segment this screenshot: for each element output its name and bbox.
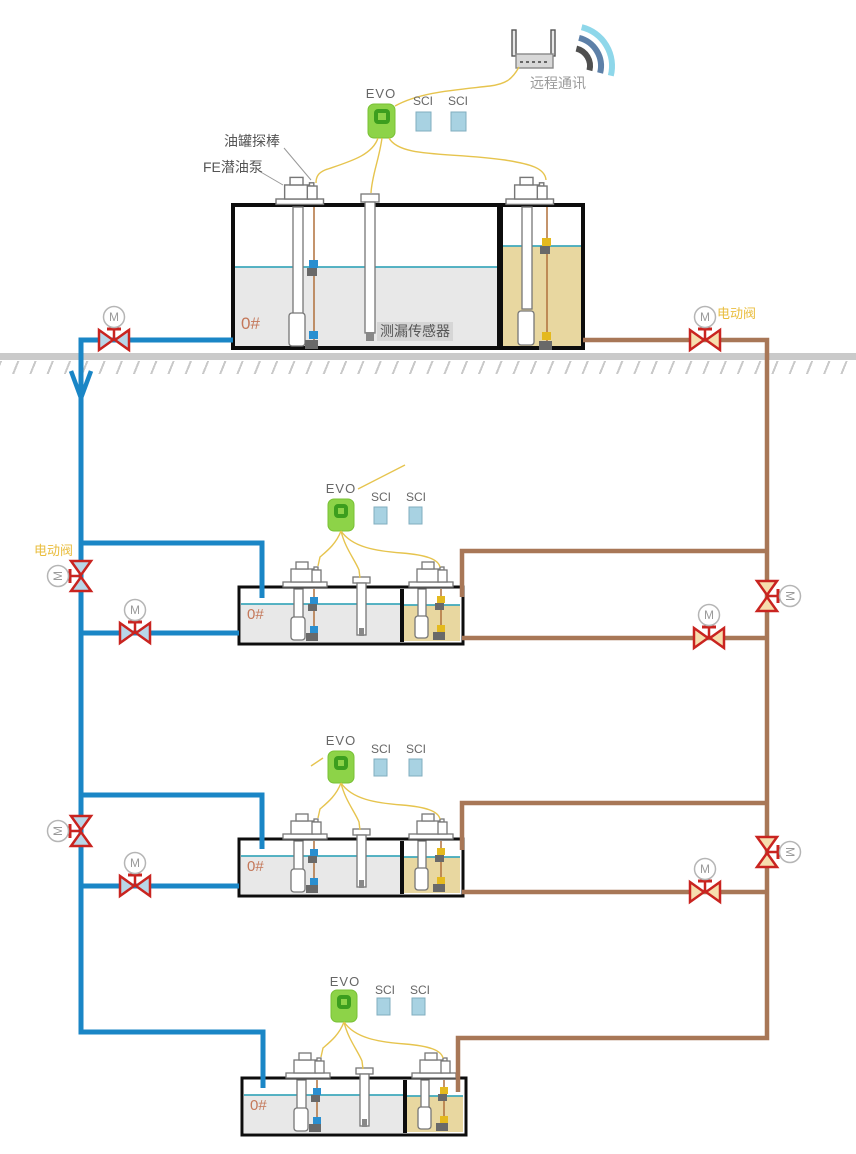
leak-sensor-label: 测漏传感器 — [377, 322, 453, 341]
sci-label: SCI — [401, 490, 431, 504]
fuel-grade-label: 0# — [247, 858, 264, 875]
motor-label: M — [130, 603, 140, 617]
fuel-pipe-brown — [458, 340, 767, 1092]
motor-label: M — [109, 310, 119, 324]
sci-label: SCI — [370, 983, 400, 997]
electric-valve-label: 电动阀 — [34, 540, 73, 559]
signal-link-line — [358, 465, 405, 489]
motor-label: M — [130, 856, 140, 870]
wifi-signal-icon — [572, 27, 620, 75]
motor-label: M — [51, 826, 65, 836]
fuel-grade-label: 0# — [241, 314, 260, 334]
station-3-graphic — [239, 751, 463, 896]
station-2-graphic — [239, 499, 463, 644]
leak-sensor-cap — [361, 194, 379, 202]
sci-label: SCI — [405, 983, 435, 997]
sci-module-icon — [451, 112, 466, 131]
signal-link-line — [311, 758, 323, 766]
pump-tube — [293, 207, 303, 314]
fuel-station-monitoring-diagram: M M M M M M M M M M 远程通讯 油罐探棒 FE潜油泵 测漏传感… — [0, 0, 856, 1154]
station-4-graphic — [242, 990, 466, 1135]
motor-label: M — [51, 571, 65, 581]
evo-label: EVO — [321, 481, 361, 496]
submersible-pump-body — [289, 313, 305, 346]
evo-label: EVO — [361, 86, 401, 101]
fuel-pipe-blue — [71, 340, 263, 1088]
router-icon — [512, 30, 555, 68]
sci-module-icon — [416, 112, 431, 131]
submersible-pump-label: FE潜油泵 — [203, 157, 263, 177]
sci-label: SCI — [443, 94, 473, 108]
tank-probe-label: 油罐探棒 — [224, 131, 280, 151]
sci-label: SCI — [401, 742, 431, 756]
motor-label: M — [704, 608, 714, 622]
motor-label: M — [783, 847, 797, 857]
remote-comm-label: 远程通讯 — [530, 73, 586, 93]
motor-label: M — [783, 591, 797, 601]
fuel-grade-label: 0# — [250, 1097, 267, 1114]
leak-sensor-tube — [365, 202, 375, 333]
pump-fitting-icon — [506, 177, 554, 204]
diagram-canvas: M M M M M M M M M M — [0, 0, 856, 1154]
sci-label: SCI — [366, 490, 396, 504]
evo-label: EVO — [325, 974, 365, 989]
electric-valve-label: 电动阀 — [717, 303, 756, 322]
station-1-tank — [233, 104, 583, 350]
sci-label: SCI — [408, 94, 438, 108]
motor-label: M — [700, 310, 710, 324]
evo-label: EVO — [321, 733, 361, 748]
motor-label: M — [700, 862, 710, 876]
fuel-grade-label: 0# — [247, 606, 264, 623]
sci-label: SCI — [366, 742, 396, 756]
